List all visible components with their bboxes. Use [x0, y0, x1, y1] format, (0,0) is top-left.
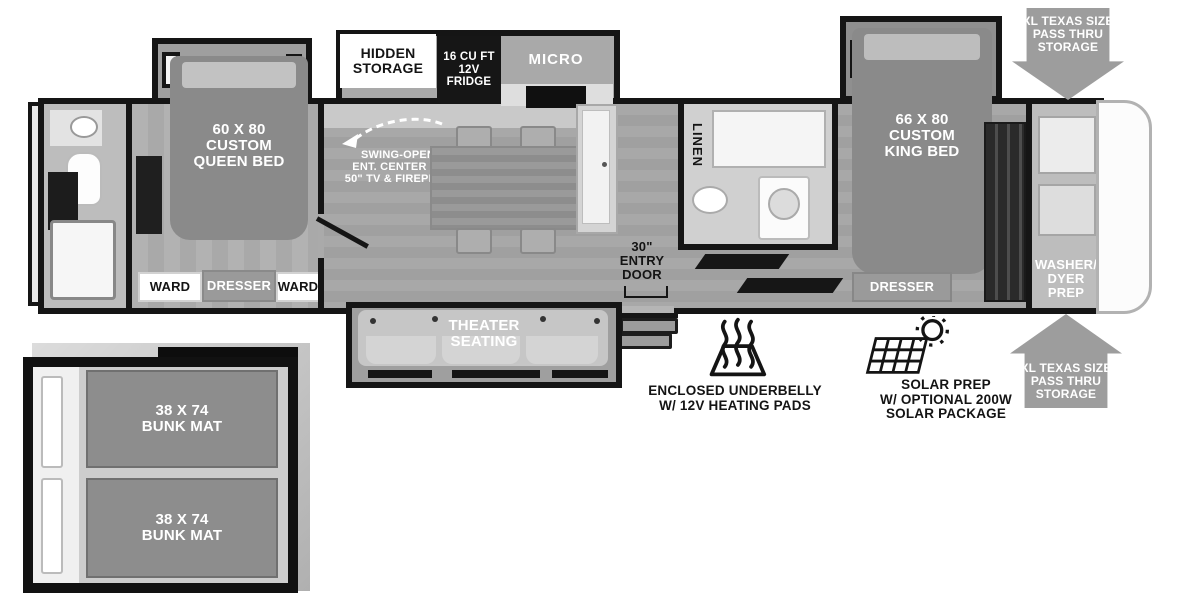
bunk-mat-top-label-line: 38 X 74 — [142, 403, 222, 419]
micro-text: MICRO — [529, 51, 584, 68]
heat-waves-icon — [700, 316, 772, 380]
solar-prep-label-line: W/ OPTIONAL 200W — [842, 393, 1050, 408]
entry-door-label-line: ENTRY — [610, 254, 674, 268]
king-bed-label-line: CUSTOM — [852, 128, 992, 144]
entry-door-label: 30"ENTRYDOOR — [610, 240, 674, 282]
pantry-handle-icon — [602, 162, 607, 167]
hall-step-1 — [695, 254, 790, 269]
mid-bath-sink-icon — [692, 186, 728, 214]
front-closet-upper — [1038, 116, 1096, 174]
washer-dryer-label-line: WASHER/ — [1030, 258, 1102, 272]
dresser-bed1-box: DRESSER — [202, 270, 276, 302]
washer-dryer-label-line: PREP — [1030, 286, 1102, 300]
bunk-closet-door-upper — [41, 376, 63, 468]
theater-cupholder-1 — [370, 318, 376, 324]
bunk-mat-top-label-line: BUNK MAT — [142, 419, 222, 435]
bunk-closet-door-lower — [41, 478, 63, 574]
queen-bed-label-line: 60 X 80 — [170, 122, 308, 138]
floorplan-canvas: 60 X 80CUSTOMQUEEN BED WARD DRESSER WARD… — [0, 0, 1200, 600]
wall-bath2-king — [832, 104, 838, 250]
theater-window-strip-3 — [552, 370, 608, 378]
pass-thru-top-label-line: XL TEXAS SIZE — [1022, 15, 1113, 28]
entry-step-2 — [614, 333, 672, 349]
theater-window-strip-1 — [368, 370, 432, 378]
theater-window-strip-2 — [452, 370, 540, 378]
dresser-bed1-label: DRESSER — [207, 279, 271, 293]
bunk-mat-top-label: 38 X 74BUNK MAT — [142, 403, 222, 435]
dining-chair-bottom-right — [520, 228, 556, 254]
queen-bed-pillow — [182, 62, 296, 88]
entry-door-label-line: DOOR — [610, 268, 674, 282]
underbelly-label: ENCLOSED UNDERBELLYW/ 12V HEATING PADS — [630, 384, 840, 413]
ward-left-box: WARD — [138, 272, 202, 302]
entry-step-1 — [620, 318, 678, 334]
pass-thru-top-label: XL TEXAS SIZEPASS THRUSTORAGE — [1022, 8, 1113, 54]
queen-bed-label: 60 X 80CUSTOMQUEEN BED — [170, 122, 308, 171]
theater-seating-label-line: SEATING — [404, 334, 564, 350]
king-bed-label-line: 66 X 80 — [852, 112, 992, 128]
dresser-bed2-label: DRESSER — [870, 280, 934, 294]
front-cap — [1096, 100, 1152, 314]
ward-left-label: WARD — [150, 280, 191, 294]
theater-seating-label-line: THEATER — [404, 318, 564, 334]
wall-bedroom-living — [318, 104, 324, 308]
fridge-label: 16 CU FT12VFRIDGE — [443, 51, 494, 88]
solar-prep-label: SOLAR PREPW/ OPTIONAL 200WSOLAR PACKAGE — [842, 378, 1050, 422]
entry-door-label-line: 30" — [610, 240, 674, 254]
micro-label: MICRO — [516, 52, 596, 68]
underbelly-label-line: ENCLOSED UNDERBELLY — [630, 384, 840, 399]
pass-thru-top-label-line: STORAGE — [1022, 41, 1113, 54]
wall-bath2-bottom — [678, 244, 838, 250]
king-bed-pillow — [864, 34, 980, 60]
king-bed-label: 66 X 80CUSTOMKING BED — [852, 112, 992, 161]
fridge-box: 16 CU FT12VFRIDGE — [437, 36, 501, 104]
pass-thru-top-label-line: PASS THRU — [1022, 28, 1113, 41]
linen-text: LINEN — [690, 123, 705, 167]
washer-dryer-label-line: DYER — [1030, 272, 1102, 286]
queen-bed-label-line: CUSTOM — [170, 138, 308, 154]
hidden-storage-box: HIDDENSTORAGE — [340, 34, 436, 88]
hidden-storage-label-line: HIDDEN — [353, 46, 423, 61]
king-wardrobe-door — [984, 122, 1026, 302]
linen-label: LINEN — [686, 110, 704, 180]
bunk-mat-bottom-label-line: 38 X 74 — [142, 512, 222, 528]
dining-table — [430, 146, 580, 230]
fridge-label-line: 16 CU FT — [443, 51, 494, 63]
ward-right-label: WARD — [278, 280, 319, 294]
dresser-bed2-box: DRESSER — [852, 272, 952, 302]
solar-panel-sun-icon — [860, 316, 952, 378]
washer-dryer-label: WASHER/DYERPREP — [1030, 258, 1102, 300]
solar-prep-label-line: SOLAR PACKAGE — [842, 407, 1050, 422]
rear-bath-shower — [50, 220, 116, 300]
solar-prep-label-line: SOLAR PREP — [842, 378, 1050, 393]
king-bed-label-line: KING BED — [852, 144, 992, 160]
bunk-mat-top: 38 X 74BUNK MAT — [86, 370, 278, 468]
hidden-storage-label-line: STORAGE — [353, 61, 423, 76]
entry-door-dimension-bracket — [624, 286, 668, 298]
theater-seating-label: THEATERSEATING — [404, 318, 564, 350]
mid-bath-shower — [712, 110, 826, 168]
bunk-mat-bottom-label-line: BUNK MAT — [142, 528, 222, 544]
theater-cupholder-4 — [594, 318, 600, 324]
dining-chair-bottom-left — [456, 228, 492, 254]
queen-bed-label-line: QUEEN BED — [170, 154, 308, 170]
underbelly-label-line: W/ 12V HEATING PADS — [630, 399, 840, 414]
hall-step-2 — [737, 278, 844, 293]
fridge-label-line: 12V — [443, 64, 494, 76]
queen-bedroom-tv-unit — [136, 156, 162, 234]
pantry-door — [582, 110, 610, 224]
ward-right-box: WARD — [276, 272, 320, 302]
pass-thru-arrow-down-icon: XL TEXAS SIZEPASS THRUSTORAGE — [1012, 8, 1124, 100]
front-closet-lower — [1038, 184, 1096, 236]
hidden-storage-label: HIDDENSTORAGE — [353, 46, 423, 76]
mid-bath-toilet-lid-icon — [768, 188, 800, 220]
fridge-label-line: FRIDGE — [443, 76, 494, 88]
rear-bath-sink-icon — [70, 116, 98, 138]
bunk-mat-bottom-label: 38 X 74BUNK MAT — [142, 512, 222, 544]
bunk-mat-bottom: 38 X 74BUNK MAT — [86, 478, 278, 578]
